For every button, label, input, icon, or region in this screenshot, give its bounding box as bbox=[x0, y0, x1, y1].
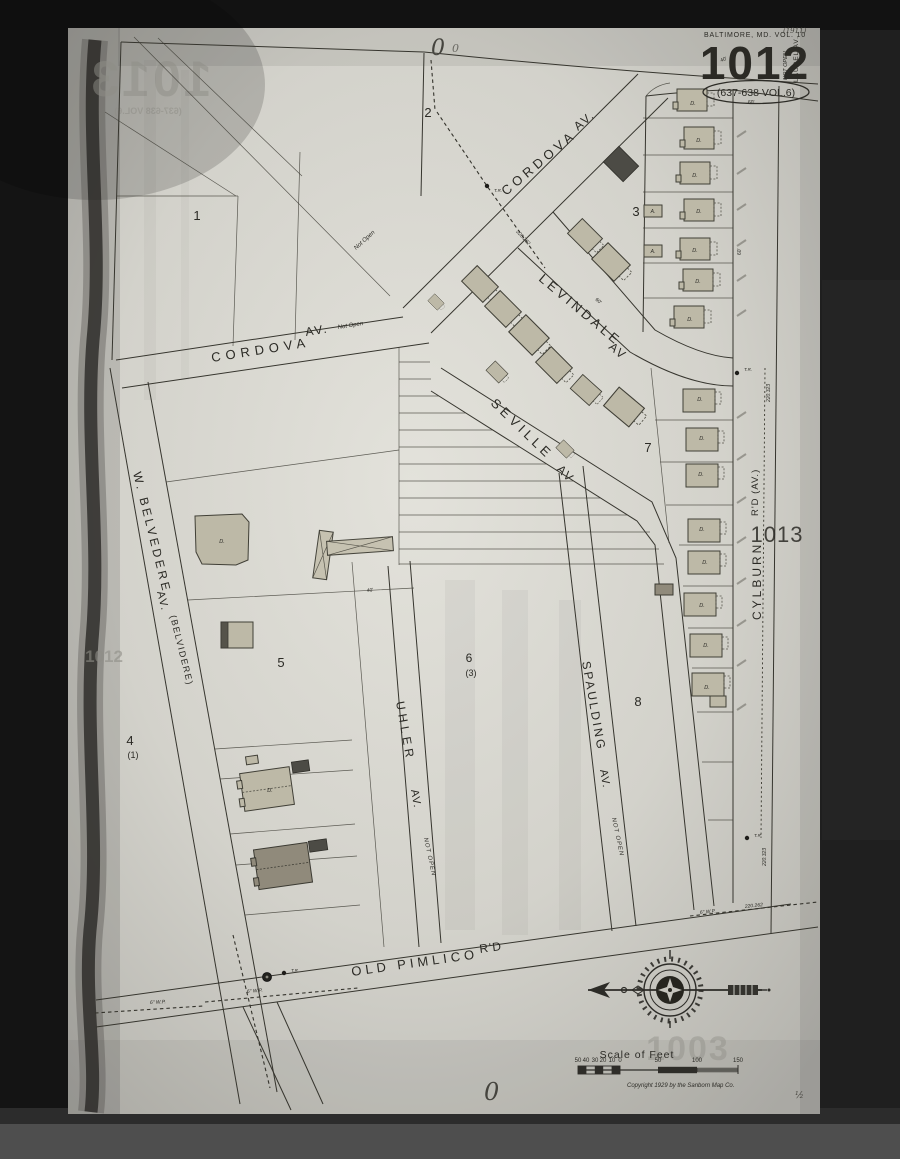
dimension-label: 40' bbox=[367, 587, 374, 594]
header-volume-ref: (637-638 VOL.6) bbox=[717, 87, 795, 99]
screenshot-root: 1013 (637-638 VOL.6) 1012 1003 bbox=[0, 0, 900, 1159]
block-number-1: 1 bbox=[193, 208, 200, 223]
margin-not-open: NOT OPEN bbox=[783, 51, 789, 80]
dwelling bbox=[221, 622, 253, 648]
dwelling-letter: D. bbox=[692, 248, 698, 254]
dwelling-letter: D. bbox=[690, 101, 696, 107]
block-number-4-sub: (1) bbox=[128, 750, 139, 760]
block-number-8: 8 bbox=[634, 694, 641, 709]
sanborn-map-sheet: 1013 (637-638 VOL.6) 1012 1003 bbox=[0, 0, 900, 1159]
dwelling-letter: D. bbox=[696, 138, 702, 144]
dwelling-letter: D. bbox=[699, 527, 705, 533]
double-dwelling-dark bbox=[250, 842, 313, 890]
dwelling-letter: D. bbox=[695, 279, 701, 285]
scale-tick: 20 bbox=[600, 1058, 607, 1064]
tr-label: T.R. bbox=[744, 367, 752, 372]
dwelling-letter: D. bbox=[267, 788, 273, 794]
block-number-3: 3 bbox=[632, 204, 639, 219]
dwelling-letter: D. bbox=[703, 643, 709, 649]
scale-tick: 30 bbox=[592, 1058, 599, 1064]
dwelling-letter: D. bbox=[704, 685, 710, 691]
scale-tick: 100 bbox=[692, 1058, 703, 1064]
dwelling bbox=[686, 428, 724, 451]
film-edge-artifact bbox=[88, 40, 96, 1112]
sheet-header: BALTIMORE, MD. VOL. 10 1012 (637-638 VOL… bbox=[700, 27, 810, 104]
dwelling-wing bbox=[710, 696, 726, 707]
dwelling bbox=[692, 673, 730, 696]
dwelling-letter: D. bbox=[687, 317, 693, 323]
dark-shed bbox=[291, 760, 309, 773]
dimension-label: 60' bbox=[737, 248, 743, 255]
margin-street-laurel: LAUREL AV. bbox=[793, 36, 800, 82]
handwritten-zero-top-small: 0 bbox=[452, 42, 459, 55]
block-number-6-sub: (3) bbox=[466, 668, 477, 678]
water-pipe-label: 6" W.P. bbox=[150, 999, 166, 1006]
handwritten-zero-bottom: 0 bbox=[484, 1078, 499, 1106]
survey-label: 220.323 bbox=[762, 848, 768, 867]
adjacent-sheet-number: 1013 bbox=[751, 522, 804, 547]
dark-shed bbox=[655, 584, 673, 595]
scale-tick: 50 bbox=[575, 1058, 582, 1064]
dwelling-letter: D. bbox=[219, 539, 225, 545]
block-number-6: 6 bbox=[466, 651, 473, 665]
dark-shed bbox=[308, 839, 327, 852]
scale-tick: 50 bbox=[655, 1058, 662, 1064]
dwelling bbox=[690, 634, 728, 657]
dwelling-letter: D. bbox=[702, 560, 708, 566]
ghost-sheet-number-left: 1012 bbox=[85, 647, 123, 666]
dwelling-letter: D. bbox=[698, 472, 704, 478]
garage-letter: A. bbox=[650, 209, 656, 215]
copyright-line: Copyright 1929 by the Sanborn Map Co. bbox=[627, 1083, 734, 1089]
scale-tick: 10 bbox=[609, 1058, 616, 1064]
block-number-4: 4 bbox=[126, 733, 133, 748]
street-suffix-cylburn: R'D (AV.) bbox=[750, 469, 761, 516]
tr-label: T.R. bbox=[291, 968, 299, 973]
handwritten-zero-top: 0 bbox=[431, 36, 445, 61]
garage-letter: A. bbox=[650, 249, 656, 255]
block-number-7: 7 bbox=[644, 440, 651, 455]
scale-tick: 40 bbox=[583, 1058, 590, 1064]
dwelling bbox=[688, 519, 726, 542]
half-mark: ½ bbox=[795, 1090, 804, 1101]
double-dwelling bbox=[236, 767, 295, 812]
bottom-light-band bbox=[0, 1124, 900, 1159]
dwelling-letter: D. bbox=[696, 209, 702, 215]
handwritten-note: (1911) bbox=[783, 27, 807, 35]
dwelling-letter: D. bbox=[699, 436, 705, 442]
dwelling-letter: D. bbox=[697, 397, 703, 403]
block-number-2: 2 bbox=[424, 105, 431, 120]
survey-label: 220.323 bbox=[766, 384, 772, 403]
street-label-cylburn: CYLBURN bbox=[750, 542, 764, 620]
dwelling bbox=[686, 464, 724, 487]
tr-label: T.R. bbox=[754, 833, 762, 838]
dwelling-letter: D. bbox=[692, 173, 698, 179]
block-number-5: 5 bbox=[277, 655, 284, 670]
shed bbox=[246, 755, 259, 765]
dwelling-letter: D. bbox=[699, 603, 705, 609]
scale-tick: 150 bbox=[733, 1058, 744, 1064]
